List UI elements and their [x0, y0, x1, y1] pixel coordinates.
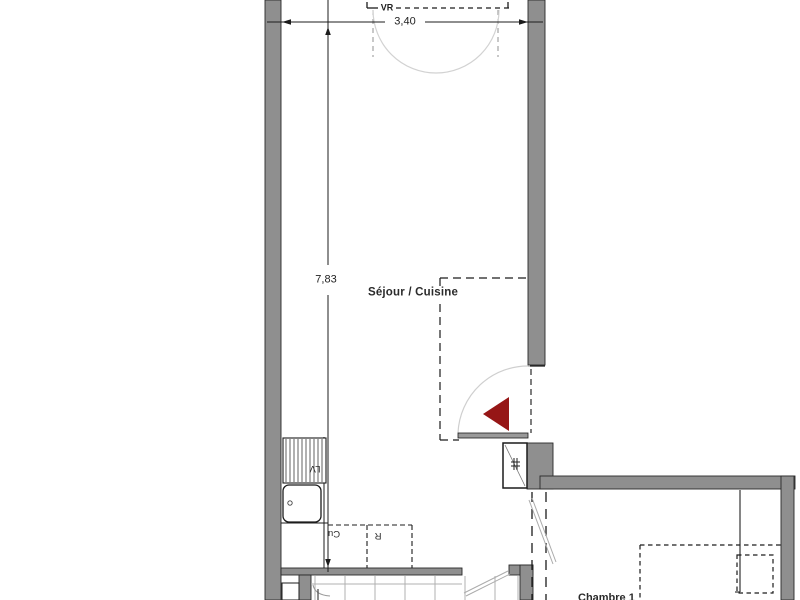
chambre-closet-line	[735, 490, 740, 592]
bed-dashes	[640, 545, 781, 600]
dishwasher-hatch	[283, 438, 326, 483]
window-swing-arc-right	[436, 10, 499, 73]
bathtub-corner	[313, 585, 330, 596]
nightstand-dash	[737, 555, 773, 593]
walls	[265, 0, 795, 600]
floor-plan-drawing	[0, 0, 800, 600]
room-label-sejour: Séjour / Cuisine	[366, 287, 460, 299]
wall-kitchen-bottom	[281, 568, 462, 575]
kitchen-zone-dashes	[440, 278, 528, 440]
bathroom-door-leaf	[464, 571, 510, 596]
room-label-chambre1: Chambre 1	[578, 592, 635, 600]
sink	[281, 485, 328, 523]
technical-duct-box	[503, 443, 527, 488]
entrance-door-swing-arc	[458, 366, 530, 433]
fridge-label: R	[373, 530, 384, 540]
floor-plan: VR 3,40 7,83 Séjour / Cuisine LV Cu R Ch…	[0, 0, 800, 600]
dimension-width-label: 3,40	[392, 17, 417, 28]
shutter-label: VR	[379, 4, 396, 13]
hallway-door-leaf	[529, 498, 556, 564]
dimension-height-label: 7,83	[313, 275, 338, 286]
wall-right-upper	[528, 0, 545, 365]
wall-left-stub	[299, 575, 311, 600]
bathroom-fixtures	[311, 576, 518, 600]
entrance-arrow-icon	[483, 397, 509, 431]
bath-niche	[282, 583, 299, 600]
entrance-door-leaf	[458, 433, 528, 438]
dishwasher-label: LV	[308, 463, 323, 473]
cooker-label: Cu	[326, 528, 342, 538]
wall-chambre-top	[540, 476, 795, 489]
wall-right-lower	[781, 476, 794, 600]
wall-bath-corner	[520, 565, 533, 600]
hallway-dashes	[532, 492, 546, 600]
wall-left	[265, 0, 281, 600]
